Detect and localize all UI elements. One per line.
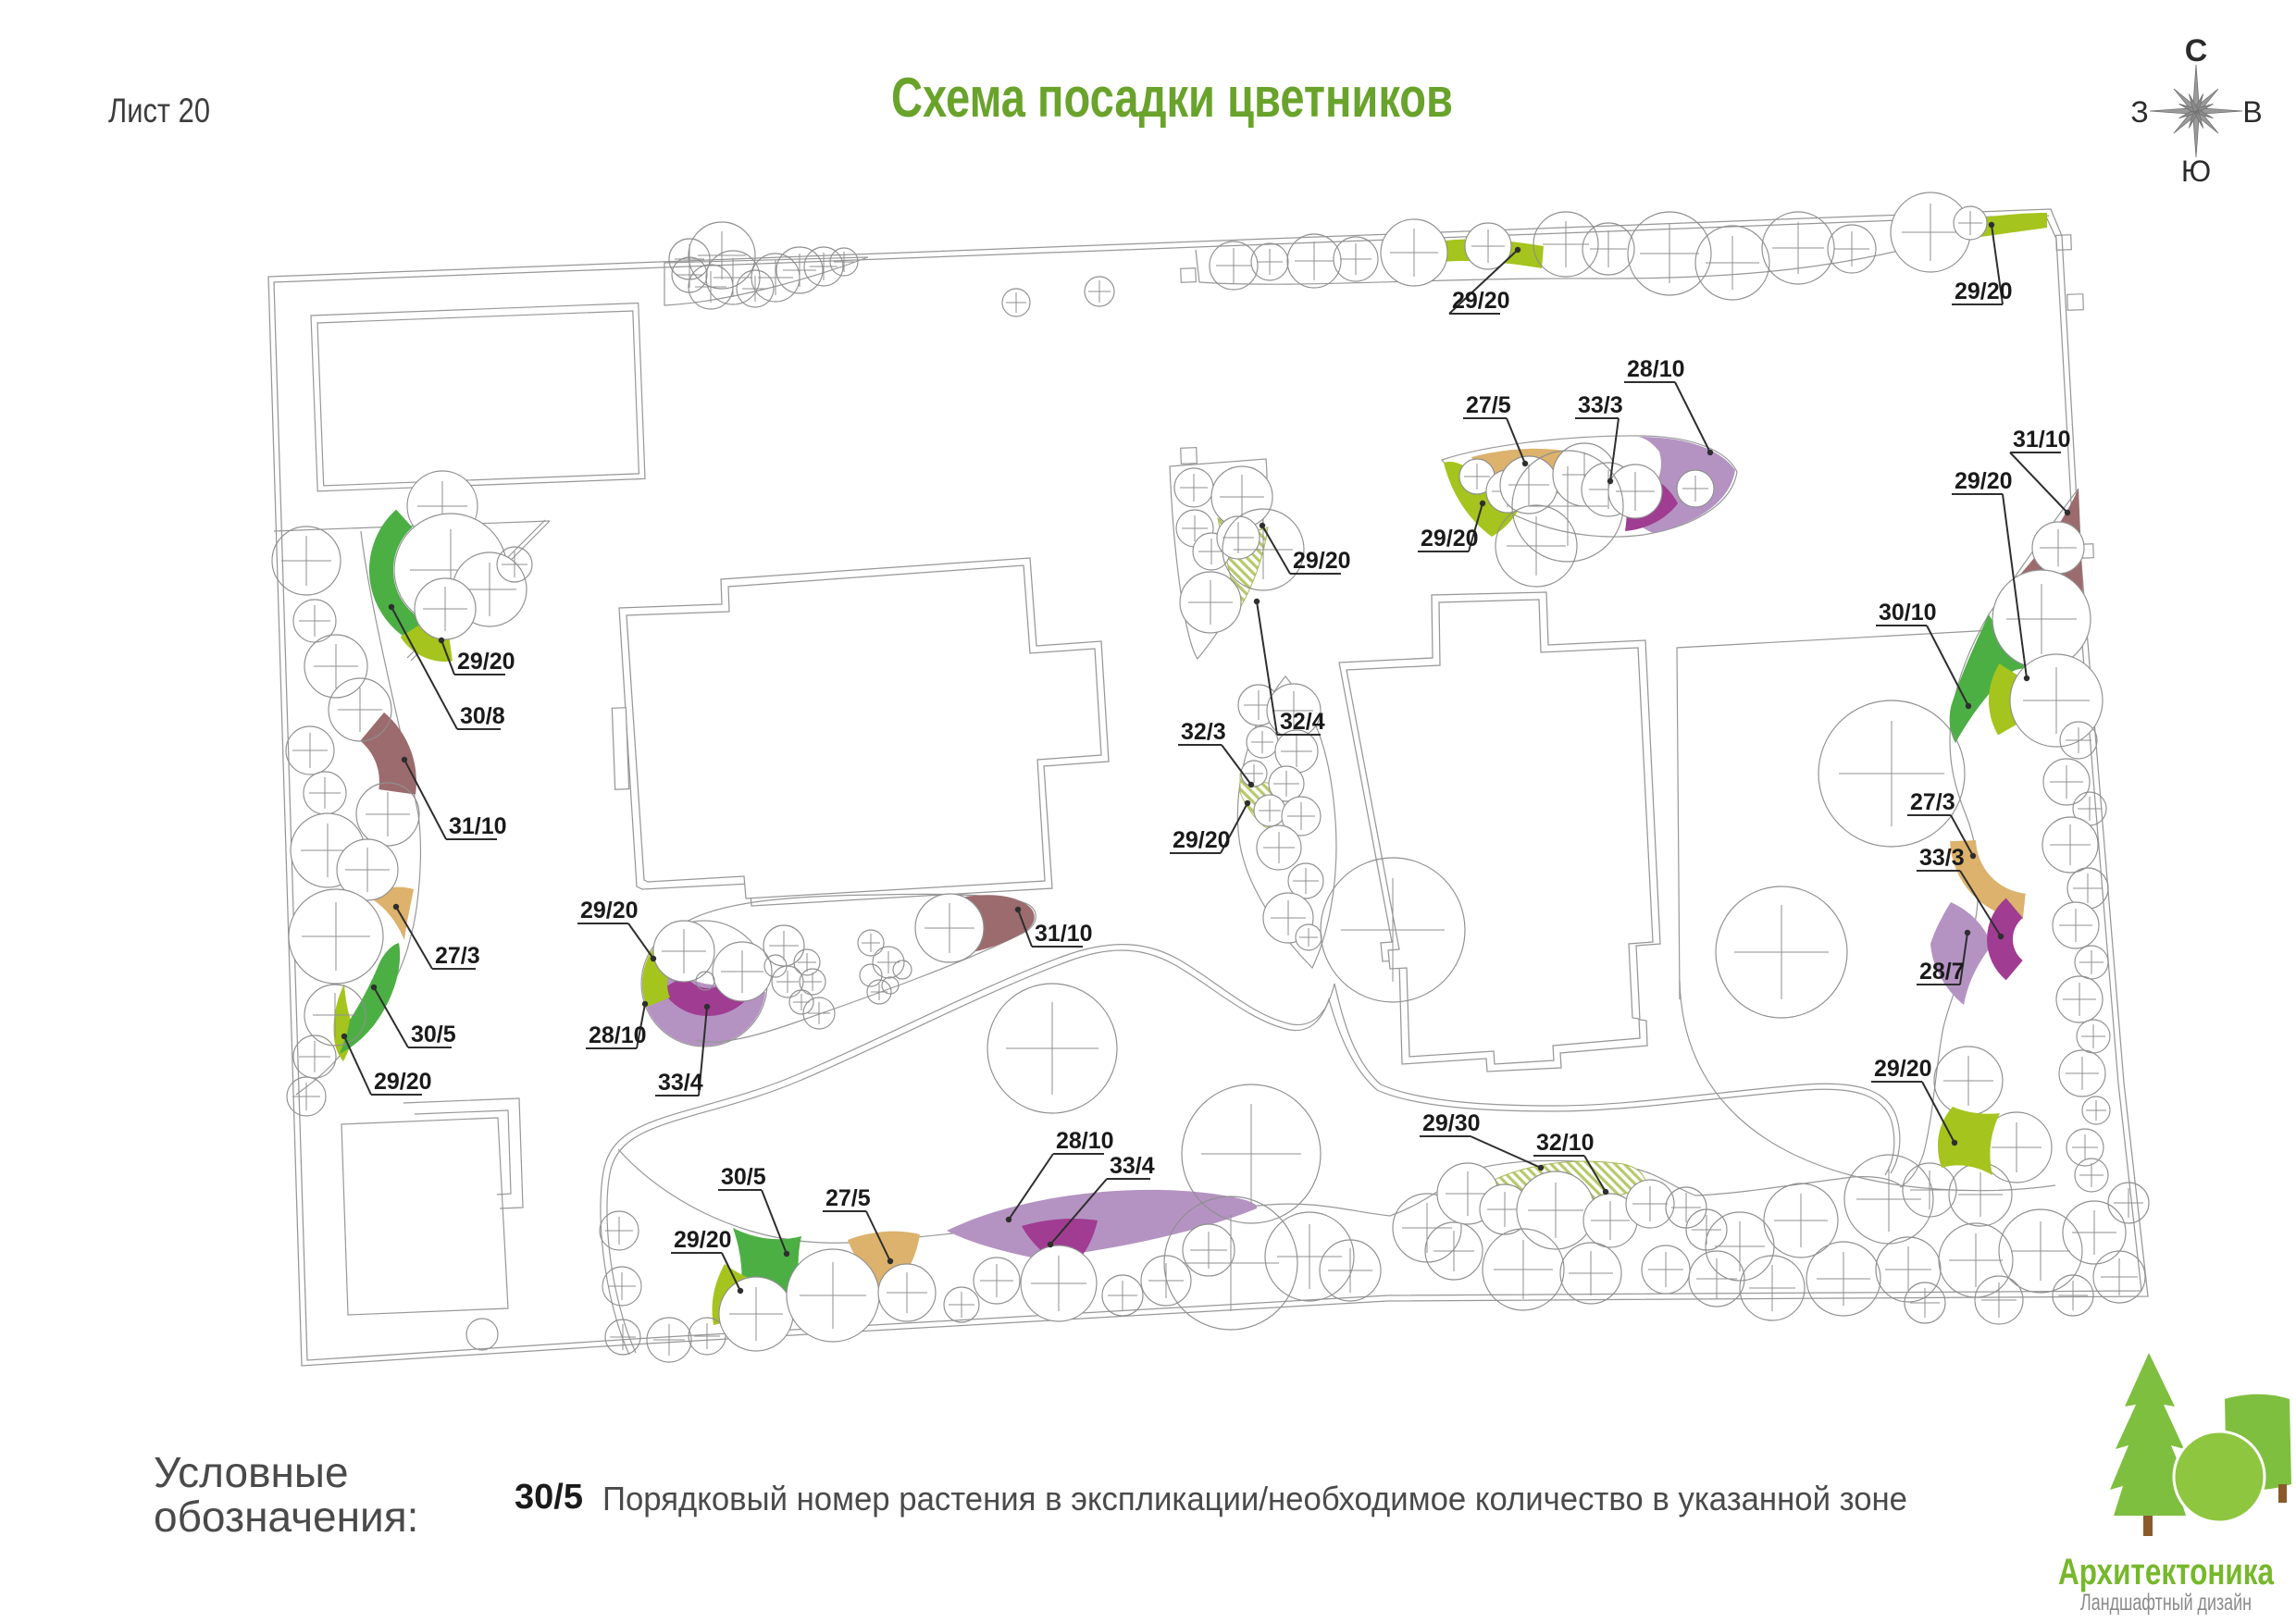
svg-text:29/30: 29/30 <box>1422 1110 1481 1136</box>
svg-text:Ландшафтный дизайн: Ландшафтный дизайн <box>2080 1590 2252 1616</box>
svg-text:33/3: 33/3 <box>1578 392 1623 418</box>
svg-text:28/10: 28/10 <box>1627 356 1685 382</box>
svg-text:31/10: 31/10 <box>449 813 507 839</box>
svg-text:Лист 20: Лист 20 <box>108 92 210 130</box>
svg-text:29/20: 29/20 <box>1874 1056 1932 1082</box>
svg-text:З: З <box>2130 95 2148 129</box>
svg-text:29/20: 29/20 <box>457 649 515 675</box>
svg-text:29/20: 29/20 <box>1955 279 2013 304</box>
svg-text:29/20: 29/20 <box>1293 548 1351 574</box>
svg-text:33/4: 33/4 <box>1110 1153 1155 1179</box>
svg-text:30/5: 30/5 <box>515 1478 583 1517</box>
svg-text:28/10: 28/10 <box>589 1022 647 1048</box>
svg-text:29/20: 29/20 <box>1421 526 1479 551</box>
svg-text:27/5: 27/5 <box>825 1185 871 1211</box>
svg-text:31/10: 31/10 <box>2013 427 2071 452</box>
svg-text:27/3: 27/3 <box>435 943 480 969</box>
svg-text:30/5: 30/5 <box>721 1164 766 1190</box>
svg-text:Условные: Условные <box>154 1448 349 1496</box>
svg-text:Архитектоника: Архитектоника <box>2058 1552 2275 1592</box>
svg-text:29/20: 29/20 <box>374 1069 432 1095</box>
svg-text:31/10: 31/10 <box>1035 921 1093 947</box>
svg-text:29/20: 29/20 <box>580 898 639 923</box>
svg-text:32/10: 32/10 <box>1536 1130 1595 1156</box>
svg-text:В: В <box>2242 95 2262 129</box>
svg-text:30/5: 30/5 <box>411 1022 456 1047</box>
svg-text:27/3: 27/3 <box>1910 789 1955 815</box>
svg-text:30/8: 30/8 <box>460 703 505 729</box>
svg-text:27/5: 27/5 <box>1466 392 1511 418</box>
svg-text:Схема посадки цветников: Схема посадки цветников <box>891 67 1453 129</box>
svg-text:29/20: 29/20 <box>674 1227 732 1253</box>
svg-text:28/7: 28/7 <box>1919 959 1965 985</box>
svg-text:32/3: 32/3 <box>1181 719 1226 745</box>
svg-text:С: С <box>2185 33 2208 68</box>
svg-text:33/3: 33/3 <box>1919 845 1965 871</box>
svg-text:32/4: 32/4 <box>1280 709 1325 735</box>
svg-text:Ю: Ю <box>2181 155 2211 188</box>
svg-text:30/10: 30/10 <box>1879 600 1937 626</box>
svg-text:33/4: 33/4 <box>658 1070 703 1096</box>
svg-text:29/20: 29/20 <box>1955 468 2013 494</box>
svg-text:29/20: 29/20 <box>1173 827 1231 853</box>
svg-text:29/20: 29/20 <box>1452 288 1510 314</box>
svg-text:28/10: 28/10 <box>1056 1128 1114 1154</box>
svg-text:Порядковый номер растения в эк: Порядковый номер растения в экспликации/… <box>602 1480 1907 1518</box>
svg-text:обозначения:: обозначения: <box>154 1493 418 1541</box>
